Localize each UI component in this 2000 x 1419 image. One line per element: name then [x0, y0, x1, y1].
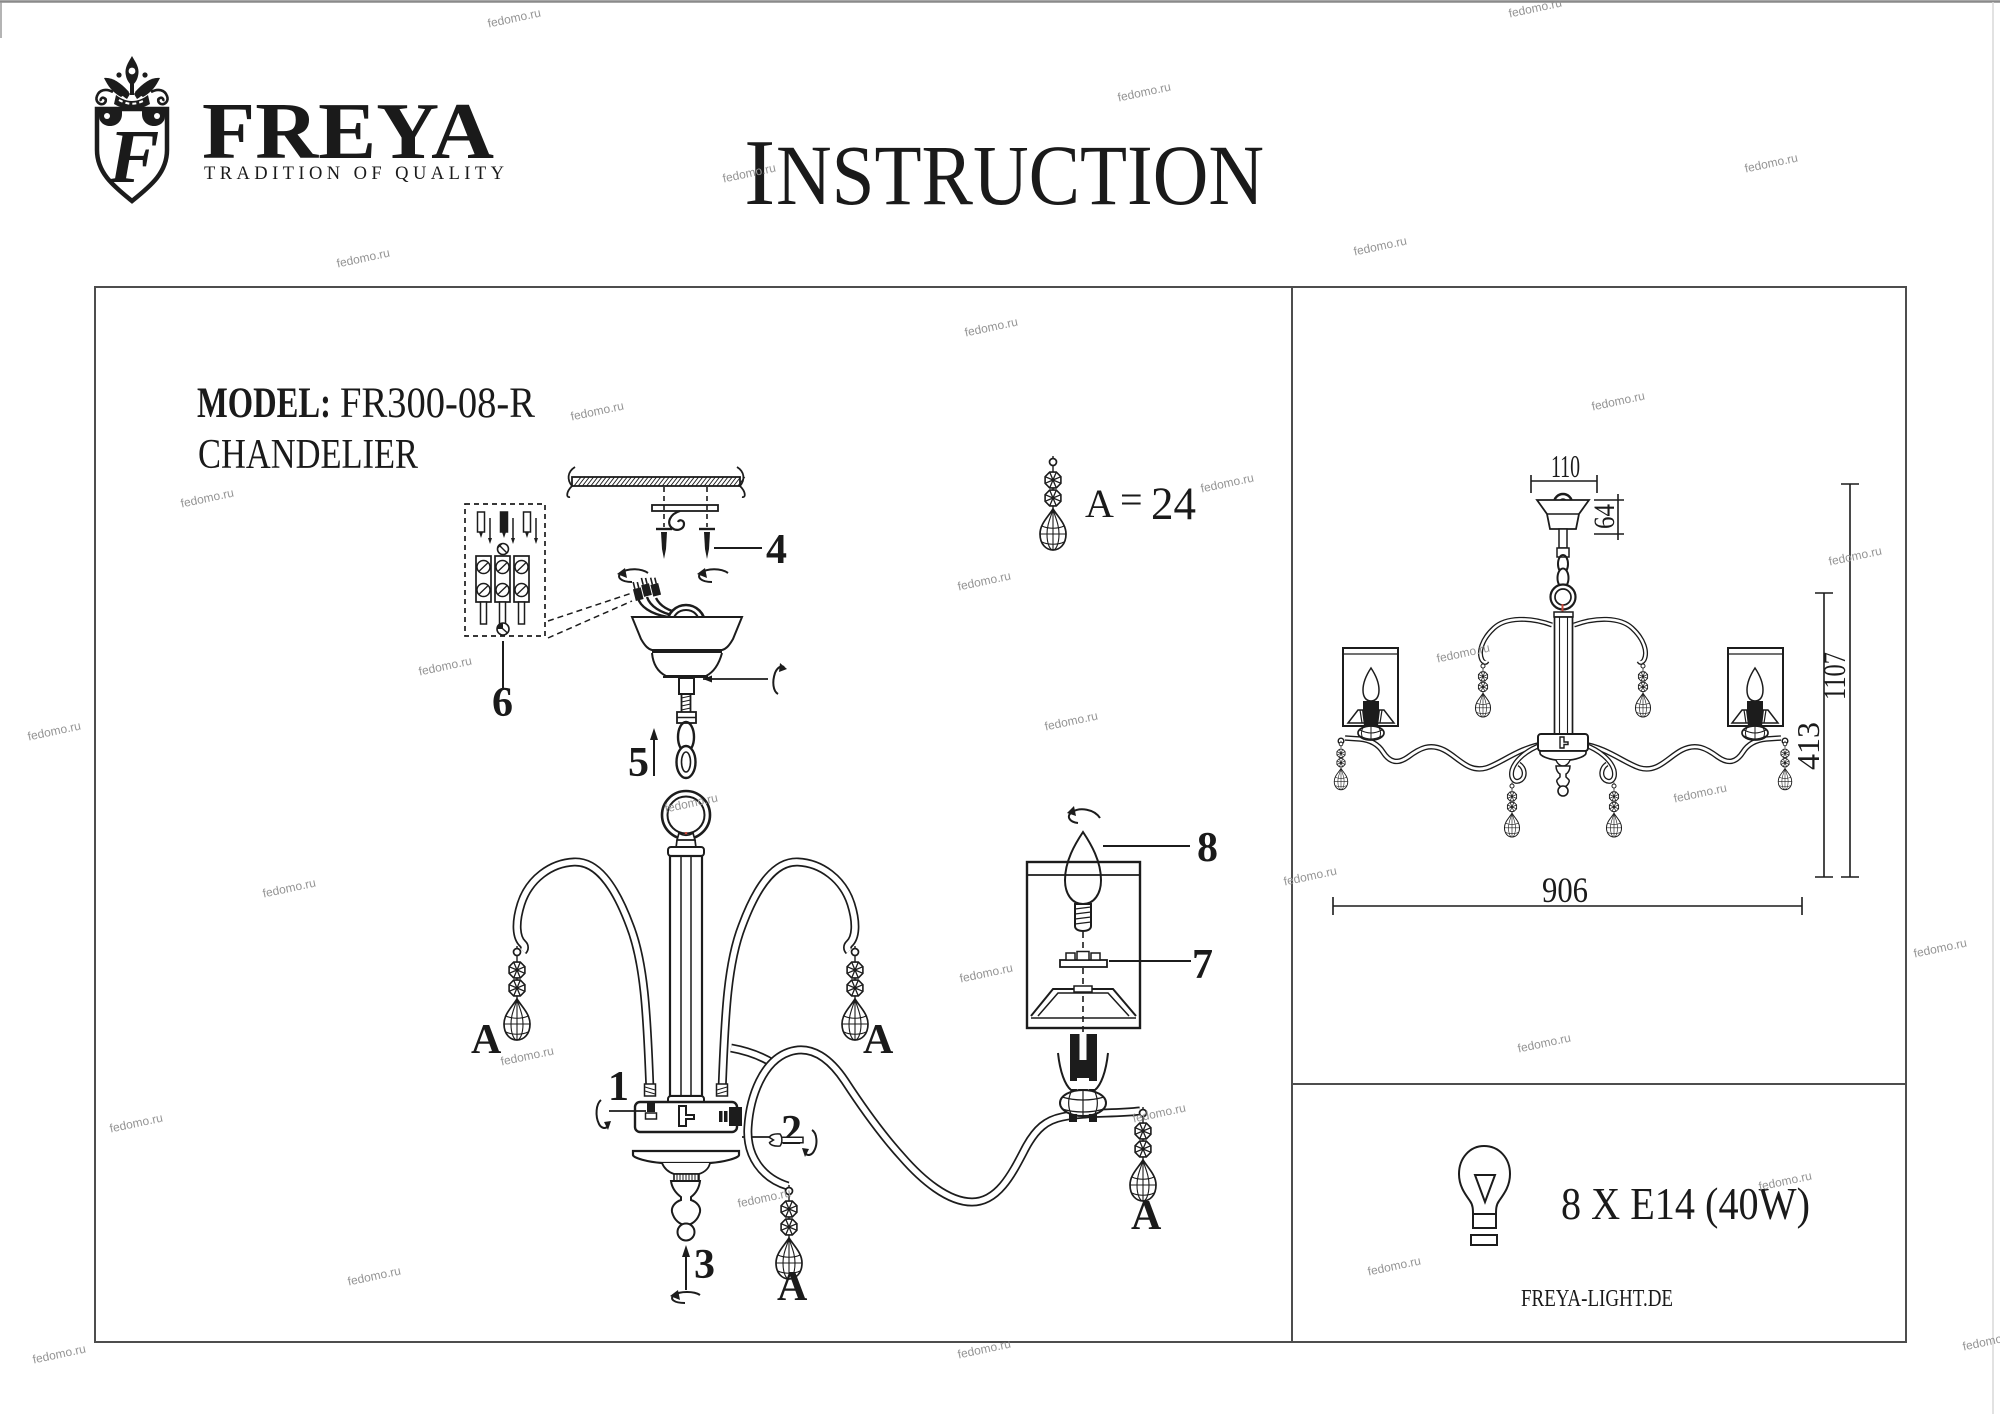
svg-text:A: A — [1131, 1193, 1162, 1239]
svg-text:413: 413 — [1790, 722, 1826, 770]
svg-text:906: 906 — [1542, 870, 1588, 910]
svg-text:2: 2 — [781, 1108, 802, 1154]
svg-text:FR300-08-R: FR300-08-R — [340, 380, 535, 427]
svg-text:FREYA-LIGHT.DE: FREYA-LIGHT.DE — [1521, 1286, 1673, 1312]
svg-text:6: 6 — [492, 680, 513, 726]
svg-text:FREYA: FREYA — [202, 88, 494, 176]
svg-text:CHANDELIER: CHANDELIER — [198, 432, 418, 478]
svg-text:64: 64 — [1588, 504, 1621, 529]
svg-text:A: A — [1085, 481, 1114, 526]
svg-text:3: 3 — [694, 1242, 715, 1288]
svg-text:=: = — [1120, 477, 1143, 522]
svg-text:24: 24 — [1151, 478, 1196, 530]
svg-text:A: A — [471, 1017, 502, 1063]
svg-text:7: 7 — [1192, 942, 1213, 988]
svg-text:4: 4 — [766, 527, 787, 573]
svg-text:A: A — [863, 1017, 894, 1063]
svg-text:NSTRUCTION: NSTRUCTION — [776, 127, 1264, 223]
svg-text:110: 110 — [1551, 448, 1580, 484]
svg-text:F: F — [108, 115, 160, 199]
svg-text:TRADITION OF QUALITY: TRADITION OF QUALITY — [204, 164, 504, 184]
svg-text:A: A — [777, 1264, 808, 1310]
svg-text:1107: 1107 — [1816, 652, 1852, 700]
svg-text:1: 1 — [608, 1064, 629, 1110]
svg-text:MODEL:: MODEL: — [197, 380, 331, 427]
svg-text:5: 5 — [628, 740, 649, 786]
svg-text:8: 8 — [1197, 825, 1218, 871]
